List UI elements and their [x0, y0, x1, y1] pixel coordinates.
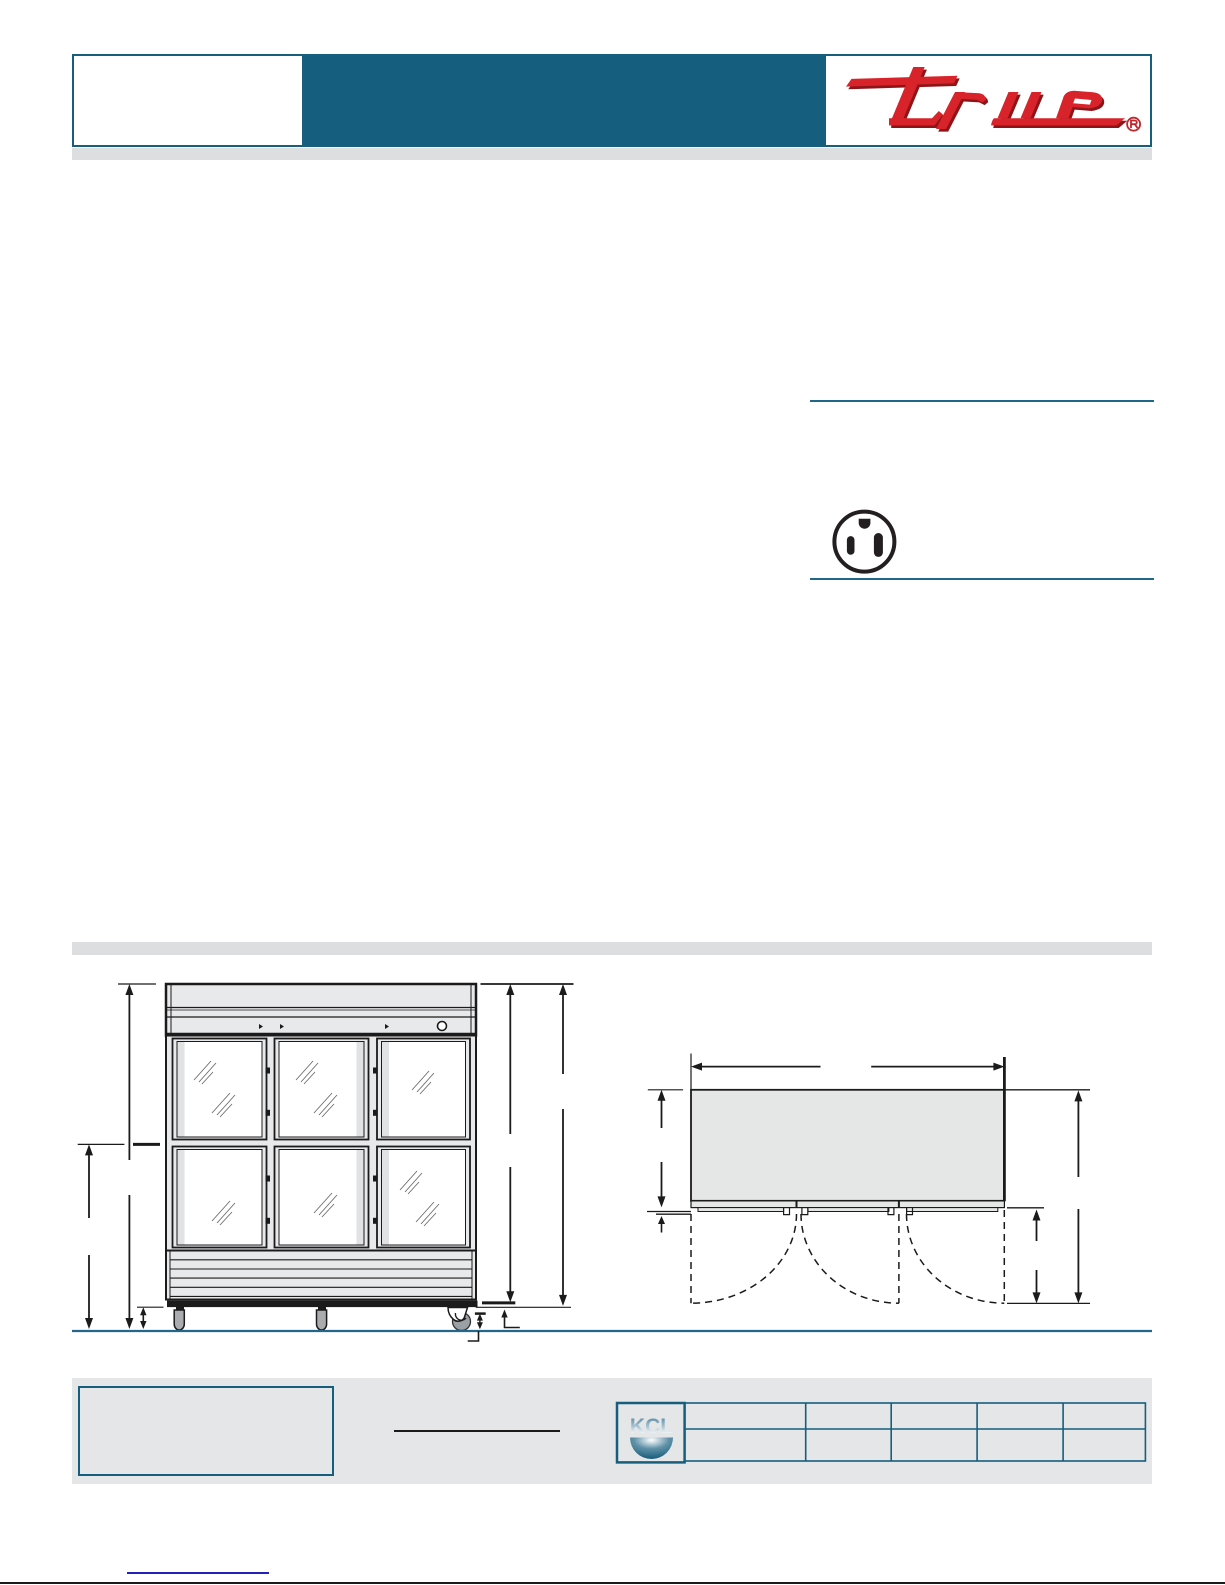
svg-text:KCL: KCL — [630, 1415, 673, 1438]
